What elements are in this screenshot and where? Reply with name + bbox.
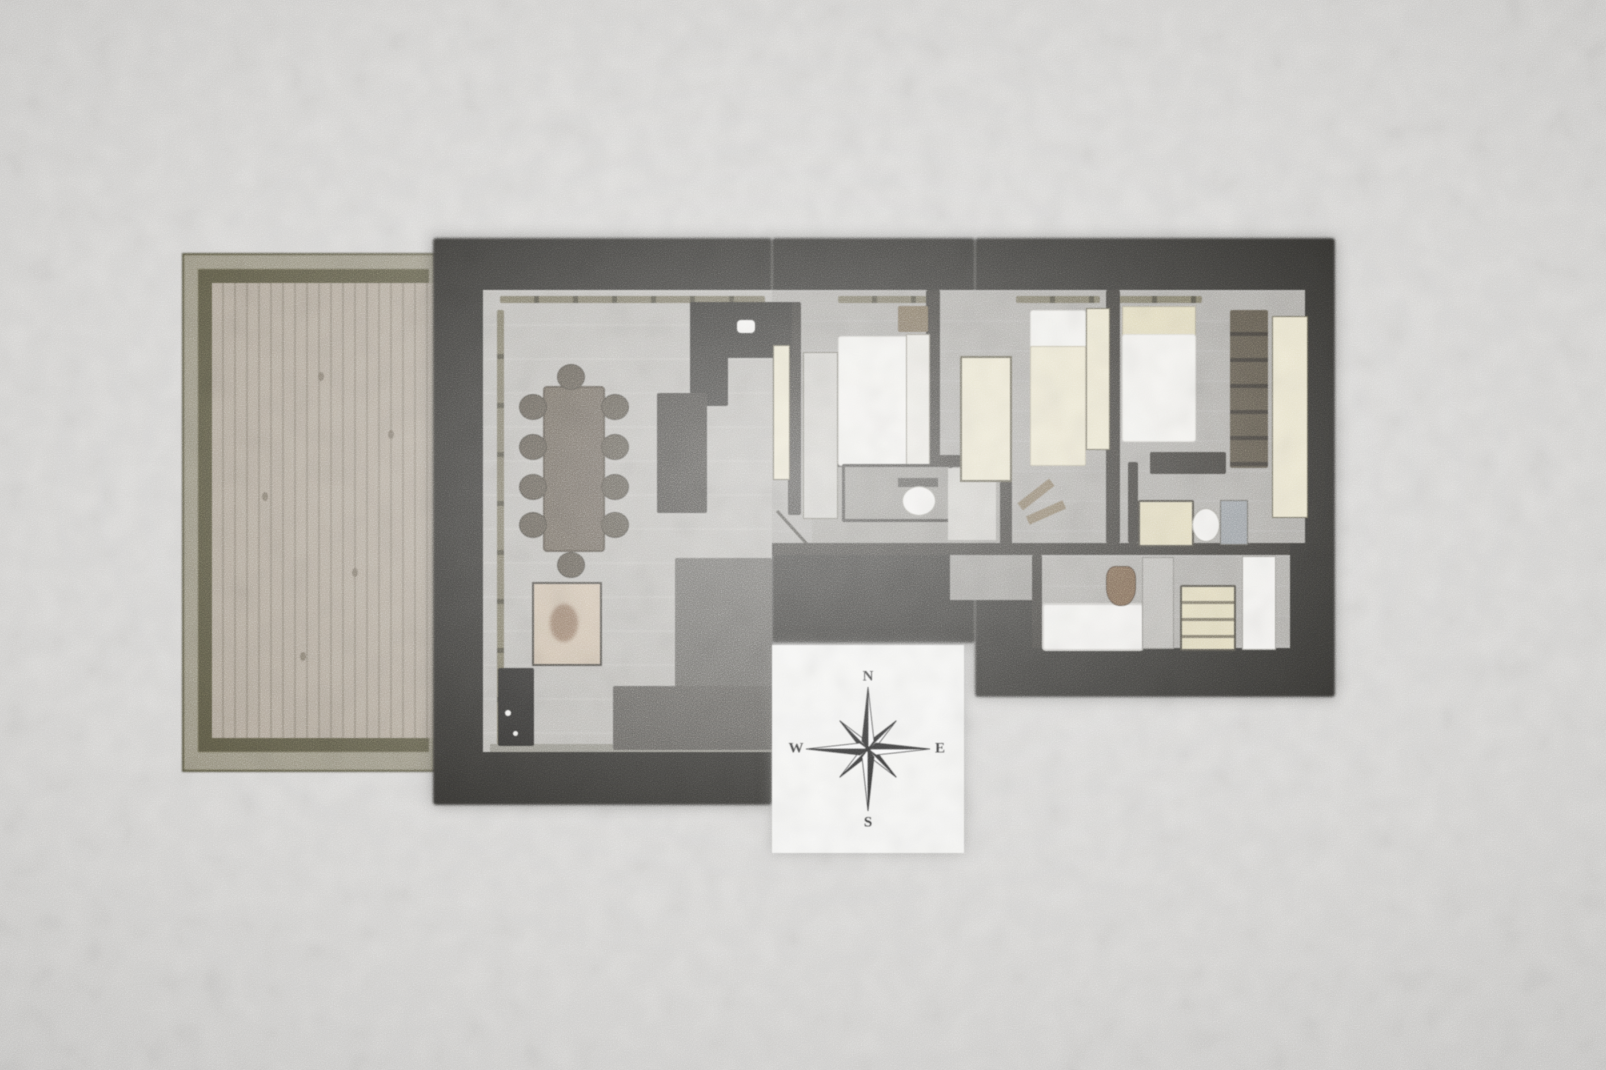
compass-label-south: S	[864, 815, 872, 832]
window-bedroom-2	[1016, 296, 1100, 303]
artwork-figure	[550, 604, 578, 642]
toilet-2	[1192, 508, 1220, 542]
wood-knot	[318, 372, 324, 381]
dining-chair	[519, 394, 547, 420]
toilet-1	[902, 486, 936, 516]
bathroom-2-bench	[1180, 585, 1236, 651]
dining-chair	[519, 434, 547, 460]
dining-chair	[557, 364, 585, 390]
dining-chair	[557, 552, 585, 578]
compass-card: N S W E	[772, 645, 964, 853]
open-door-bedroom3	[1272, 316, 1308, 518]
window-bedroom-1	[838, 296, 930, 303]
wardrobe-bedroom2	[1086, 308, 1110, 450]
dining-chair	[601, 394, 629, 420]
dining-chair	[601, 474, 629, 500]
bed-2-duvet	[1030, 346, 1086, 466]
closet-hall	[773, 345, 790, 480]
bathtub	[1042, 603, 1144, 651]
compass-label-east: E	[935, 741, 945, 758]
bookshelf-bedroom3	[1230, 310, 1268, 468]
kitchen-sink	[737, 320, 755, 333]
shower-room-vanity	[1138, 500, 1194, 547]
terrace-deck	[212, 283, 445, 738]
bed-1-headboard	[906, 334, 930, 470]
wood-knot	[262, 492, 268, 501]
compass-label-north: N	[863, 669, 874, 686]
floor-plan-canvas: N S W E	[0, 0, 1606, 1070]
bathroom-1-vanity	[842, 464, 952, 522]
shower-stall	[1220, 500, 1248, 545]
closet-bedroom1	[803, 352, 838, 519]
dining-chair	[519, 474, 547, 500]
kitchen-counter-return	[690, 302, 728, 406]
window-bedroom-3	[1118, 296, 1202, 303]
bed-3-pillow	[1122, 306, 1196, 336]
wood-knot	[388, 430, 394, 439]
wood-knot	[352, 568, 358, 577]
bed-3-footboard-desk	[1150, 452, 1226, 474]
bed-2-pillow	[1030, 310, 1086, 348]
corridor-floor	[950, 555, 1042, 600]
potted-plant	[1106, 566, 1136, 606]
wall-bathroom2-left	[1032, 555, 1042, 648]
dining-chair	[519, 512, 547, 538]
sofa-back-section	[675, 558, 772, 688]
compass-rose-icon	[793, 674, 943, 824]
wall-shower-room-left	[1128, 462, 1138, 543]
fireplace-dot	[513, 731, 518, 736]
shower-screen	[1142, 557, 1174, 649]
dining-chair	[601, 512, 629, 538]
dining-chair	[601, 434, 629, 460]
dining-table	[543, 386, 605, 552]
bed-1-nightstand-top	[898, 306, 928, 332]
sofa-seat-section	[613, 686, 772, 750]
floor-plan: N S W E	[0, 0, 1606, 1070]
door-bathroom-2	[1242, 556, 1276, 650]
compass-label-west: W	[789, 741, 804, 758]
closet-bedroom2	[960, 356, 1012, 482]
credenza	[657, 393, 707, 513]
fireplace-dot	[505, 710, 511, 716]
bed-1-duvet	[838, 336, 908, 466]
bed-3-duvet	[1122, 334, 1196, 442]
wall-corridor-band	[772, 543, 1290, 555]
wood-knot	[300, 652, 306, 661]
